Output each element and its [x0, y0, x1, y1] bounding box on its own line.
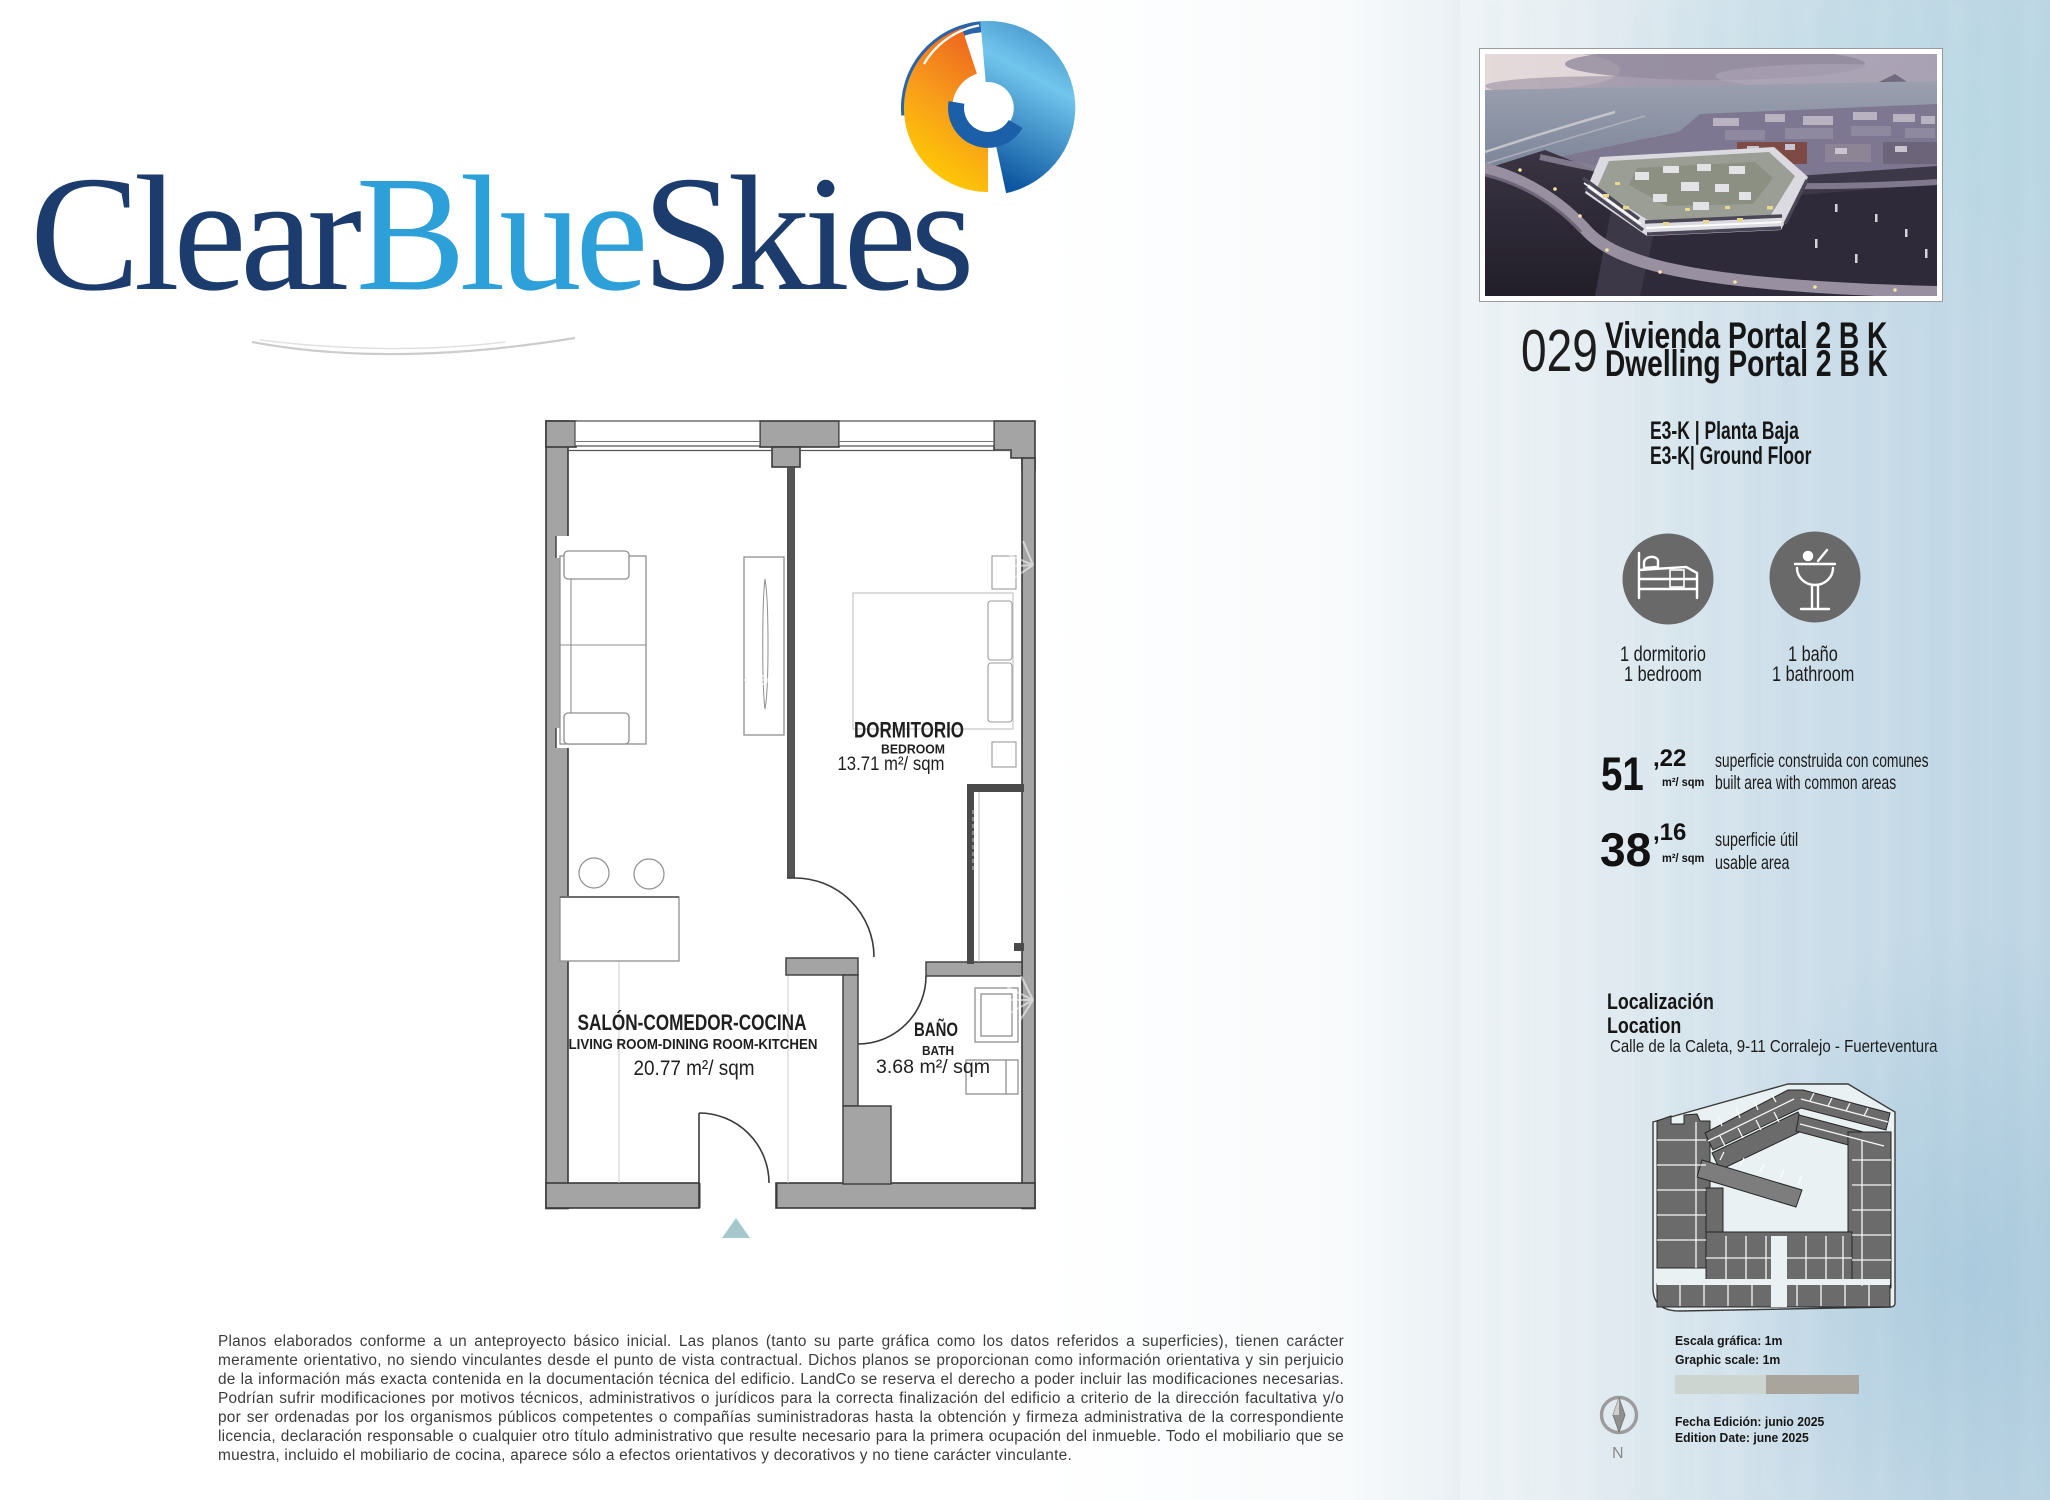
svg-text:SALÓN-COMEDOR-COCINA: SALÓN-COMEDOR-COCINA — [578, 1010, 807, 1035]
svg-text:N: N — [1612, 1445, 1624, 1462]
svg-text:13.71 m²/ sqm: 13.71 m²/ sqm — [838, 753, 945, 775]
svg-text:LIVING ROOM-DINING ROOM-KITCHE: LIVING ROOM-DINING ROOM-KITCHEN — [569, 1037, 818, 1053]
svg-text:DORMITORIO: DORMITORIO — [854, 718, 964, 743]
svg-text:20.77 m²/ sqm: 20.77 m²/ sqm — [634, 1057, 755, 1080]
svg-text:BAÑO: BAÑO — [914, 1018, 958, 1041]
svg-text:3.68 m²/ sqm: 3.68 m²/ sqm — [876, 1056, 990, 1078]
